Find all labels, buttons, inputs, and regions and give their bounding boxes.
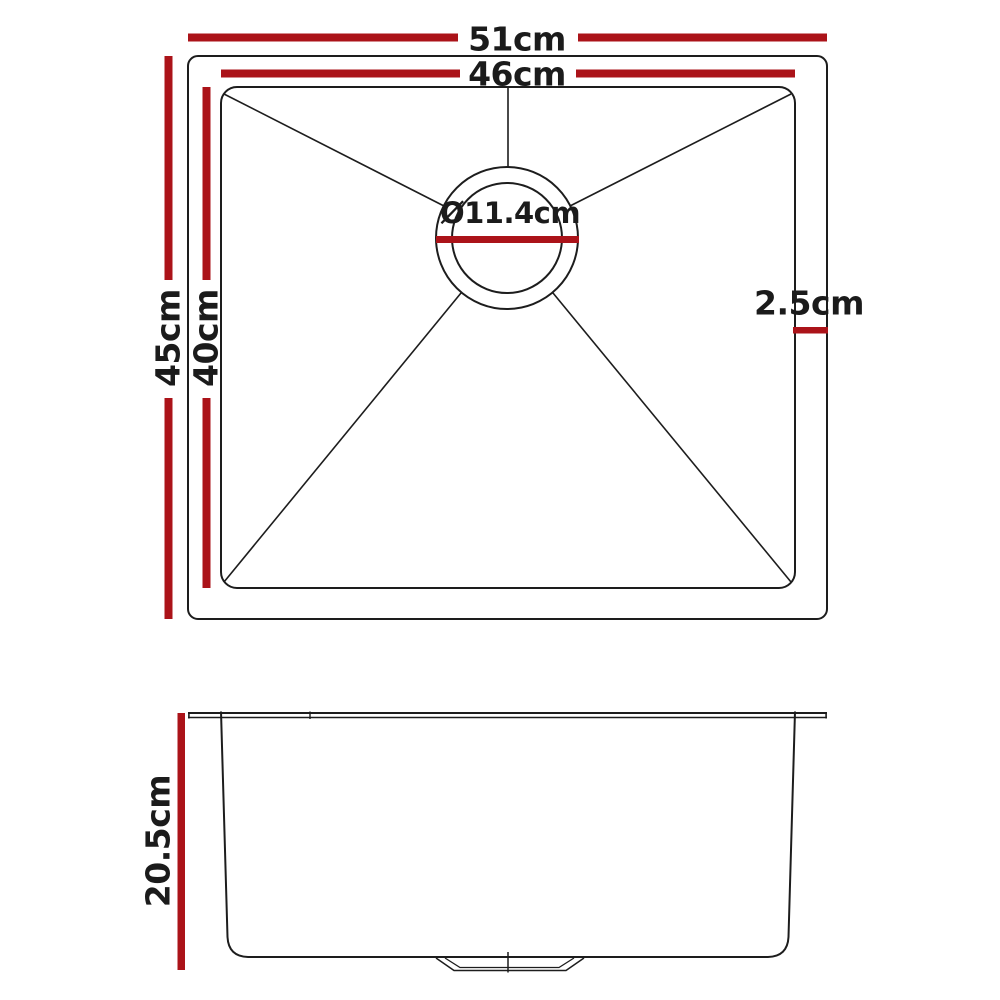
overall-width-label: 51cm — [468, 20, 566, 59]
bowl-crease-top-left — [224, 94, 444, 206]
sink-dimension-diagram: 51cm 46cm 45cm 40cm Ø11.4cm 2.5cm 20.5cm — [0, 0, 1000, 1000]
dimension-bar — [436, 236, 579, 243]
dimension-bar — [221, 70, 460, 78]
diagram-svg: 51cm 46cm 45cm 40cm Ø11.4cm 2.5cm 20.5cm — [0, 0, 1000, 1000]
drain-recess-outer — [436, 958, 584, 971]
side-view — [188, 712, 827, 973]
dimension-bowl-height — [178, 713, 186, 970]
dimension-bar — [165, 56, 173, 280]
drain-diameter-label: Ø11.4cm — [440, 196, 580, 230]
overall-depth-label: 45cm — [149, 289, 188, 387]
bowl-width-label: 46cm — [468, 55, 566, 94]
drain-recess-inner — [445, 958, 574, 968]
bowl-depth-label: 40cm — [187, 289, 226, 387]
dimension-bar — [188, 34, 458, 42]
bowl-height-label: 20.5cm — [139, 775, 178, 907]
bowl-crease-bottom-right — [553, 293, 791, 582]
dimension-rim-width — [793, 327, 828, 334]
dimension-drain-diameter — [436, 236, 579, 243]
dimension-bar — [165, 398, 173, 619]
dimension-bar — [576, 70, 795, 78]
bowl-profile — [221, 712, 795, 958]
dimension-bar — [793, 327, 828, 334]
top-view — [188, 56, 827, 619]
dimension-bar — [178, 713, 186, 970]
bowl-crease-top-right — [570, 94, 791, 206]
dimension-bar — [203, 398, 211, 588]
dimension-bar — [203, 87, 211, 280]
dimension-bar — [578, 34, 827, 42]
dimension-annotations — [165, 34, 829, 971]
dimension-labels: 51cm 46cm 45cm 40cm Ø11.4cm 2.5cm 20.5cm — [139, 20, 864, 908]
bowl-crease-bottom-left — [224, 293, 461, 582]
rim-width-label: 2.5cm — [754, 284, 864, 323]
outline-layer — [188, 56, 827, 973]
